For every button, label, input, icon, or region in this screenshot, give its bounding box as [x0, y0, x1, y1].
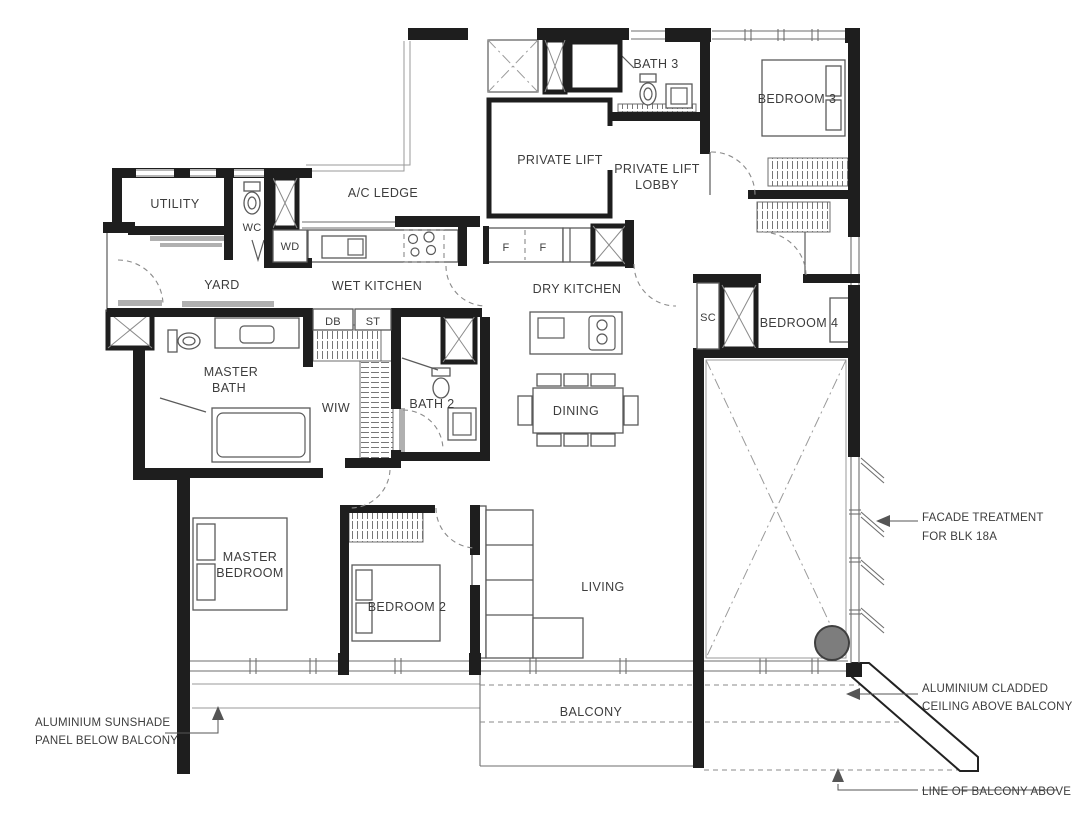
- cladded-text-2: CEILING ABOVE BALCONY: [922, 701, 1073, 713]
- label-master-bedroom-2: BEDROOM: [216, 566, 283, 580]
- sunshade-text-2: PANEL BELOW BALCONY: [35, 735, 178, 747]
- label-wet-kitchen: WET KITCHEN: [332, 279, 422, 293]
- walls: [103, 28, 884, 774]
- label-db: DB: [325, 316, 341, 328]
- column-marker: [815, 626, 849, 660]
- master-bed: [193, 518, 287, 610]
- facade-annotation: FACADE TREATMENT FOR BLK 18A: [876, 512, 1044, 543]
- label-wiw: WIW: [322, 401, 350, 415]
- living-sofa: [472, 506, 583, 658]
- door-wet-dry: [446, 266, 486, 306]
- label-master-bath-2: BATH: [212, 381, 246, 395]
- corridor-wardrobe: [757, 202, 830, 232]
- sunshade-text-1: ALUMINIUM SUNSHADE: [35, 717, 170, 729]
- wc-toilet: [244, 182, 260, 214]
- facade-text-2: FOR BLK 18A: [922, 531, 997, 543]
- facade-text-1: FACADE TREATMENT: [922, 512, 1044, 524]
- bath3-shower: [570, 42, 620, 90]
- balcony-line-text: LINE OF BALCONY ABOVE: [922, 786, 1071, 798]
- wiw-closet-side: [360, 361, 393, 459]
- label-bedroom2: BEDROOM 2: [368, 600, 447, 614]
- label-lobby-2: LOBBY: [635, 178, 679, 192]
- balcony-line-annotation: LINE OF BALCONY ABOVE: [832, 768, 1071, 798]
- cladded-arrow: [846, 688, 860, 700]
- door-bath2: [403, 410, 443, 450]
- door-bedroom4: [762, 232, 806, 276]
- sunshade-annotation: ALUMINIUM SUNSHADE PANEL BELOW BALCONY: [35, 706, 224, 747]
- label-dining: DINING: [553, 404, 599, 418]
- label-dry-kitchen: DRY KITCHEN: [533, 282, 622, 296]
- dry-kitchen-island: [530, 312, 622, 354]
- cladded-ceiling-edge: [852, 663, 978, 771]
- cladded-text-1: ALUMINIUM CLADDED: [922, 683, 1048, 695]
- label-master-bedroom-1: MASTER: [223, 550, 278, 564]
- facade-arrow: [876, 515, 890, 527]
- label-utility: UTILITY: [150, 197, 200, 211]
- door-yard: [118, 260, 163, 305]
- label-wc: WC: [243, 222, 262, 234]
- void-area: [706, 360, 846, 658]
- door-lobby-dry: [634, 264, 676, 306]
- door-bedroom3: [711, 152, 755, 195]
- floor-plan-canvas: UTILITY WC WD YARD A/C LEDGE WET KITCHEN…: [0, 0, 1080, 819]
- label-bath2: BATH 2: [409, 397, 454, 411]
- bedroom2-wardrobe: [349, 512, 423, 542]
- label-ac-ledge: A/C LEDGE: [348, 186, 418, 200]
- label-fridge2: F: [540, 242, 547, 254]
- label-living: LIVING: [581, 580, 624, 594]
- label-master-bath-1: MASTER: [204, 365, 259, 379]
- facade-slats: [861, 458, 884, 633]
- label-sc: SC: [700, 312, 716, 324]
- label-st: ST: [366, 316, 381, 328]
- floor-plan-page: UTILITY WC WD YARD A/C LEDGE WET KITCHEN…: [0, 0, 1080, 819]
- label-private-lift: PRIVATE LIFT: [517, 153, 603, 167]
- label-bath3: BATH 3: [633, 57, 678, 71]
- label-yard: YARD: [204, 278, 239, 292]
- door-master: [350, 470, 390, 508]
- label-wd: WD: [281, 241, 300, 253]
- label-lobby-1: PRIVATE LIFT: [614, 162, 700, 176]
- label-bedroom3: BEDROOM 3: [758, 92, 837, 106]
- label-fridge1: F: [503, 242, 510, 254]
- label-bedroom4: BEDROOM 4: [760, 316, 839, 330]
- window-mullions-bottom: [250, 658, 818, 674]
- label-balcony: BALCONY: [560, 705, 623, 719]
- bath3-fixtures: [612, 46, 692, 108]
- bedroom3-wardrobe: [768, 158, 848, 186]
- facade-strip: [849, 457, 884, 663]
